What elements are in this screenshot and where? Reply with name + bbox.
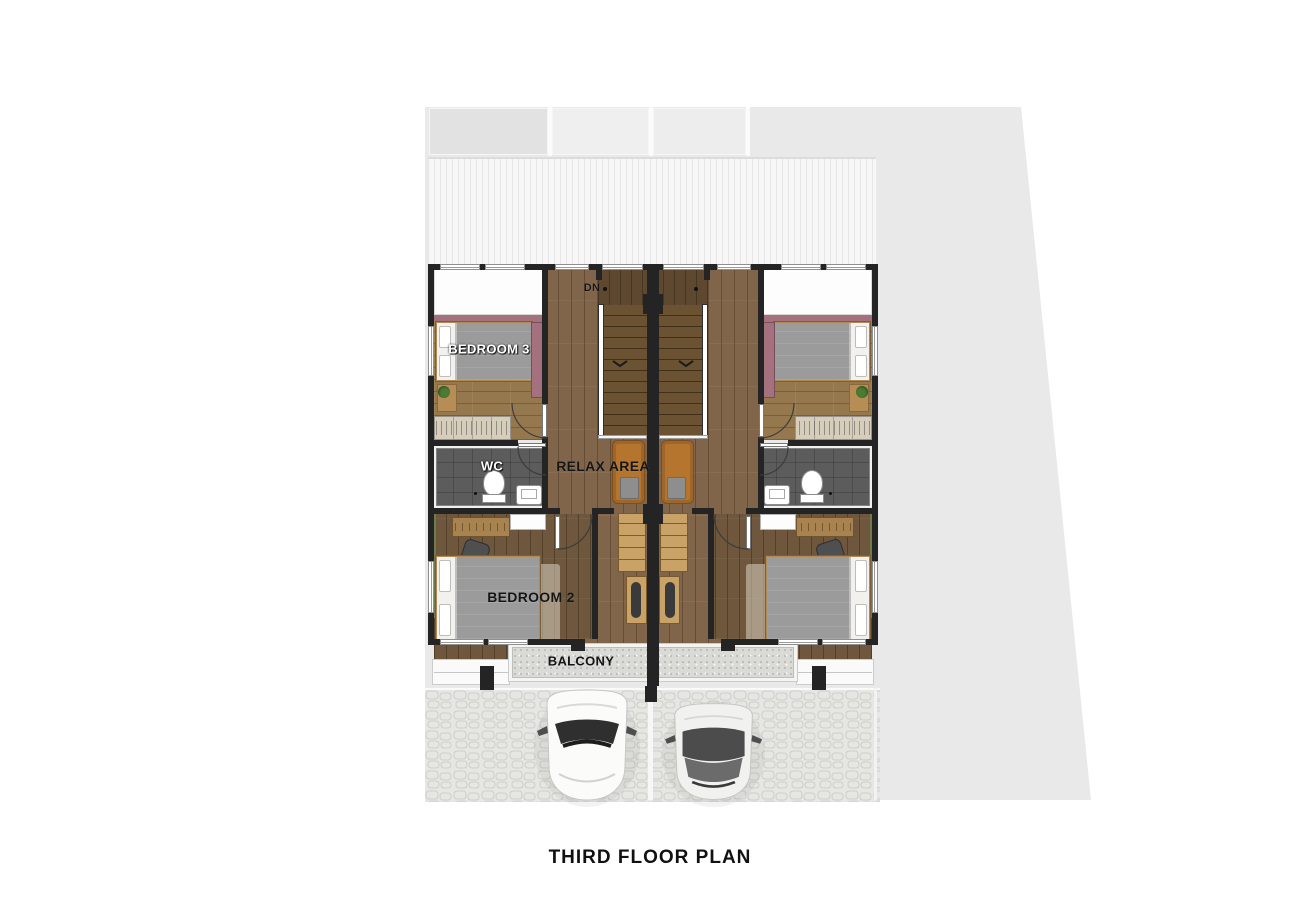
wc-label: WC: [481, 459, 503, 474]
balcony-label: BALCONY: [548, 654, 614, 669]
stair-reference-dot: [603, 287, 607, 291]
bedroom2-label: BEDROOM 2: [487, 589, 575, 605]
drawing-title: THIRD FLOOR PLAN: [0, 847, 1300, 869]
site-top-panel: [653, 108, 746, 155]
floor-plan-canvas: DN BEDROOM 3 WC RELAX AREA BEDROOM 2 BAL…: [0, 0, 1300, 919]
roof-corrugated: [428, 157, 876, 266]
car-right-icon: [662, 701, 765, 807]
stairs-down-label: DN: [584, 282, 601, 294]
site-top-panel: [429, 108, 548, 155]
unit-left: [428, 264, 653, 692]
relax-area-label: RELAX AREA: [556, 458, 650, 474]
stair-reference-dot: [694, 287, 698, 291]
site-top-panel: [552, 108, 649, 155]
panel-divider: [649, 107, 653, 156]
panel-divider: [548, 107, 552, 156]
unit-right: [653, 264, 878, 692]
parked-cars: [425, 680, 880, 810]
door-swing-arcs: [653, 264, 878, 692]
bedroom3-label: BEDROOM 3: [448, 342, 529, 357]
panel-divider: [746, 107, 750, 156]
car-left-icon: [534, 689, 640, 807]
door-swing-arcs: [428, 264, 653, 692]
building: [428, 264, 878, 692]
